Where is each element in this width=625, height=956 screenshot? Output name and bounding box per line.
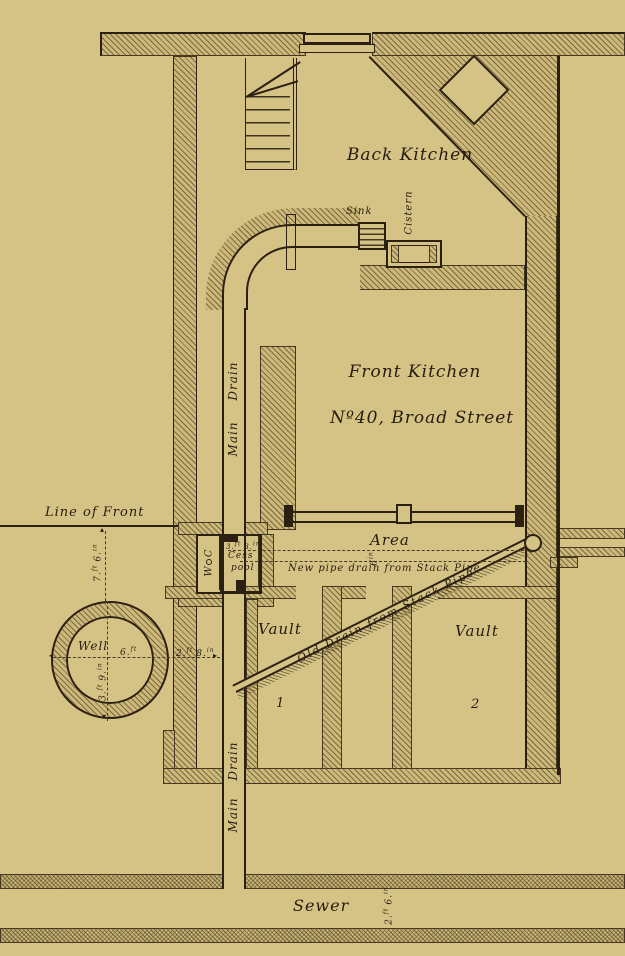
room-label-address: Nº40, Broad Street [330, 408, 510, 428]
meas-value: 3. [244, 543, 253, 551]
staircase-steps [246, 96, 290, 169]
wall-vault-divider-1 [322, 586, 342, 772]
label-line-of-front: Line of Front [45, 505, 144, 520]
meas-text: 7.ft6.in [94, 543, 104, 582]
measurement-well-diameter: 6.ft [120, 640, 137, 659]
wall-left [173, 56, 197, 772]
meas-value: 2. [176, 649, 187, 659]
cesspool-outlet-pipe [236, 580, 244, 592]
front-window-post-west [284, 505, 293, 527]
meas-text: 3.ft3.in [226, 543, 261, 551]
meas-value: 6. [120, 648, 131, 658]
wall-top-left [100, 32, 306, 56]
wall-sewer-north [0, 874, 625, 889]
cistern-end-west [391, 245, 399, 263]
measurement-cesspool: 3.ft3.in [226, 534, 261, 553]
front-window-post-east [515, 505, 524, 527]
measurement-front-offset: 7.ft6.in [86, 531, 105, 595]
arrow-well-west: ◂ [49, 652, 53, 660]
meas-value: 8. [196, 649, 207, 659]
wall-area-east-1 [558, 528, 625, 539]
meas-value: 7. [94, 571, 104, 582]
label-main-drain-upper: Main Drain [226, 344, 240, 474]
room-label-front-kitchen: Front Kitchen [340, 362, 490, 382]
meas-unit: in [368, 551, 375, 559]
meas-value: 3. [99, 690, 109, 701]
meas-text: 6.ft [120, 648, 137, 658]
label-vault-2: Vault [455, 622, 499, 640]
top-window-sill [299, 44, 375, 53]
label-new-pipe-drain: New pipe drain from Stack Pipe [288, 563, 481, 574]
wall-front-kitchen-west [260, 346, 296, 530]
measurement-new-drain-gap: 6in [362, 540, 381, 578]
main-drain-line-east [244, 308, 246, 889]
meas-value: 6. [94, 551, 104, 562]
wall-left-foot [163, 730, 175, 772]
staircase [245, 58, 297, 170]
meas-value: 2. [385, 914, 395, 925]
label-sink: Sink [346, 206, 373, 217]
front-offset-dash [105, 531, 106, 601]
measurement-sewer-width: 2.ft6.in [377, 874, 396, 938]
well-ring-hatch [53, 603, 167, 717]
vault-north-doorway-2 [366, 585, 392, 600]
meas-unit: ft [131, 646, 138, 653]
meas-value: 3. [226, 543, 235, 551]
label-vault-1: Vault [258, 620, 302, 638]
main-drain-line-west [222, 308, 224, 889]
meas-text: 6in [370, 551, 380, 566]
pipe-crossing-post [286, 214, 296, 270]
cistern-end-east [429, 245, 437, 263]
top-window-frame [303, 33, 371, 44]
meas-text: 3.ft9.in [99, 662, 109, 701]
meas-unit: in [92, 543, 99, 551]
meas-value: 6 [370, 559, 380, 566]
plan-canvas: ◂ ▸ ▴ ▾ Back Kitchen Front Kitchen Nº40,… [0, 0, 625, 956]
meas-text: 2.ft6.in [385, 886, 395, 925]
meas-unit: ft [92, 565, 99, 572]
meas-unit: in [207, 647, 215, 654]
meas-unit: ft [97, 684, 104, 691]
meas-unit: ft [187, 647, 194, 654]
line-of-front-rule [0, 525, 178, 527]
wall-top-right [372, 32, 625, 56]
measurement-well-to-wall: 2.ft8.in [176, 641, 215, 660]
meas-text: 2.ft8.in [176, 649, 215, 659]
label-cistern: Cistern [404, 183, 415, 243]
measurement-well-depth: 3.ft9.in [91, 650, 110, 714]
front-window-post-center [396, 504, 412, 524]
label-sewer: Sewer [293, 896, 349, 915]
arrow-well-south: ▾ [102, 713, 106, 721]
label-vault-2-number: 2 [471, 697, 480, 712]
label-cesspool-line2: pool [231, 563, 254, 573]
vault-north-doorway-1 [296, 585, 322, 600]
meas-value: 6. [385, 894, 395, 905]
meas-unit: in [253, 541, 261, 548]
wall-area-east-3 [550, 557, 578, 568]
meas-unit: ft [383, 908, 390, 915]
drain-curve-inner [246, 246, 360, 310]
wc-pan-circle [206, 559, 212, 565]
label-main-drain-lower: Main Drain [226, 729, 240, 845]
label-vault-1-number: 1 [276, 696, 285, 711]
meas-unit: ft [235, 541, 242, 548]
wall-area-east-2 [558, 547, 625, 557]
sink-box [358, 222, 386, 250]
wall-sewer-south [0, 928, 625, 943]
meas-unit: in [97, 662, 104, 670]
stack-pipe-circle [524, 534, 542, 552]
meas-value: 9. [99, 670, 109, 681]
meas-unit: in [383, 886, 390, 894]
wc-divider-pipe [219, 536, 222, 590]
wall-right-outer-line [557, 56, 560, 775]
room-label-back-kitchen: Back Kitchen [335, 145, 485, 165]
